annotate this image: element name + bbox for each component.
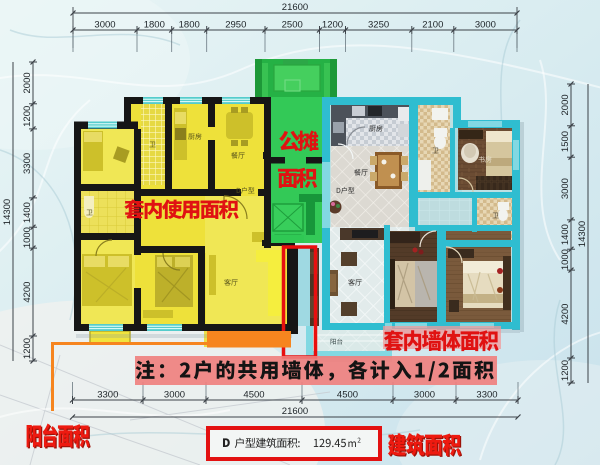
svg-text:3000: 3000 bbox=[164, 390, 185, 401]
svg-text:1800: 1800 bbox=[144, 20, 165, 31]
svg-text:1800: 1800 bbox=[179, 20, 200, 31]
svg-text:3300: 3300 bbox=[22, 153, 33, 174]
svg-text:3000: 3000 bbox=[475, 20, 496, 31]
svg-text:1400: 1400 bbox=[560, 224, 571, 245]
svg-text:4200: 4200 bbox=[22, 282, 33, 303]
svg-text:21600: 21600 bbox=[282, 2, 308, 13]
svg-text:2000: 2000 bbox=[560, 94, 571, 115]
svg-text:1200: 1200 bbox=[22, 106, 33, 127]
svg-text:1200: 1200 bbox=[560, 360, 571, 381]
svg-text:2000: 2000 bbox=[22, 72, 33, 93]
svg-text:2500: 2500 bbox=[282, 20, 303, 31]
svg-text:3300: 3300 bbox=[97, 390, 118, 401]
svg-text:4200: 4200 bbox=[560, 304, 571, 325]
svg-text:21600: 21600 bbox=[282, 406, 308, 417]
svg-text:1200: 1200 bbox=[322, 20, 343, 31]
svg-text:1400: 1400 bbox=[22, 202, 33, 223]
svg-text:3000: 3000 bbox=[94, 20, 115, 31]
svg-text:3300: 3300 bbox=[476, 390, 497, 401]
svg-text:1000: 1000 bbox=[560, 249, 571, 270]
svg-text:4500: 4500 bbox=[337, 390, 358, 401]
svg-text:3000: 3000 bbox=[414, 390, 435, 401]
svg-text:2100: 2100 bbox=[422, 20, 443, 31]
svg-text:1500: 1500 bbox=[560, 131, 571, 152]
svg-text:1000: 1000 bbox=[22, 227, 33, 248]
svg-text:14300: 14300 bbox=[577, 221, 588, 247]
svg-text:3250: 3250 bbox=[368, 20, 389, 31]
svg-text:1200: 1200 bbox=[22, 338, 33, 359]
svg-text:4500: 4500 bbox=[243, 390, 264, 401]
svg-text:3000: 3000 bbox=[560, 178, 571, 199]
svg-text:2950: 2950 bbox=[225, 20, 246, 31]
svg-text:14300: 14300 bbox=[2, 199, 13, 225]
